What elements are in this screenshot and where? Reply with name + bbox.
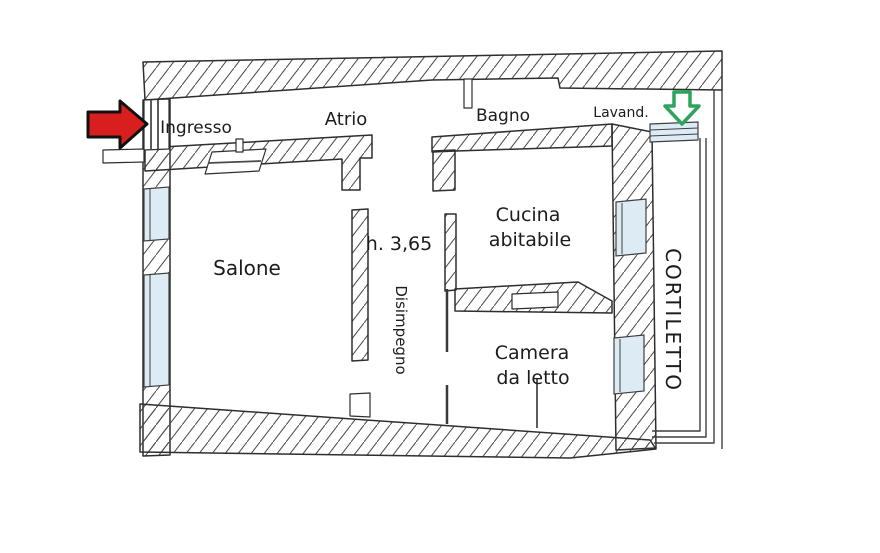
label-atrio: Atrio <box>325 109 367 130</box>
floorplan-svg: Ingresso Atrio Bagno Lavand. Salone h. 3… <box>0 0 880 553</box>
wall-top <box>143 51 722 100</box>
entrance-arrow-icon <box>88 101 147 148</box>
wall-salone-right <box>352 209 368 361</box>
wall-right <box>612 124 656 450</box>
label-ingresso: Ingresso <box>160 118 232 138</box>
wall-cucina-left <box>445 214 456 291</box>
label-camera-line2: da letto <box>496 367 569 389</box>
atrio-step-stub <box>236 139 243 152</box>
wall-cucina-pillar <box>433 150 455 191</box>
window-salone-1 <box>144 187 169 241</box>
wall-bagno-cucina <box>432 124 612 152</box>
label-lavanderia: Lavand. <box>593 105 648 121</box>
label-height-note: h. 3,65 <box>366 233 432 255</box>
floorplan-canvas: Ingresso Atrio Bagno Lavand. Salone h. 3… <box>0 0 880 553</box>
label-bagno: Bagno <box>476 106 530 126</box>
laundry-window <box>650 122 698 142</box>
label-camera-line1: Camera <box>495 342 570 364</box>
camera-door-notch <box>512 292 558 309</box>
bagno-partition-stub <box>464 79 472 108</box>
courtyard-arrow-icon <box>665 92 699 124</box>
label-cucina-line2: abitabile <box>489 229 571 251</box>
window-salone-2 <box>144 273 169 387</box>
label-cortiletto: CORTILETTO <box>661 248 685 392</box>
disimpegno-step <box>350 393 370 417</box>
wall-bottom <box>140 404 656 458</box>
label-salone: Salone <box>213 256 281 280</box>
label-disimpegno: Disimpegno <box>392 285 410 374</box>
window-cucina <box>616 199 646 256</box>
exterior-ledge <box>103 149 144 163</box>
label-cucina-line1: Cucina <box>496 204 561 226</box>
window-camera <box>614 335 644 394</box>
